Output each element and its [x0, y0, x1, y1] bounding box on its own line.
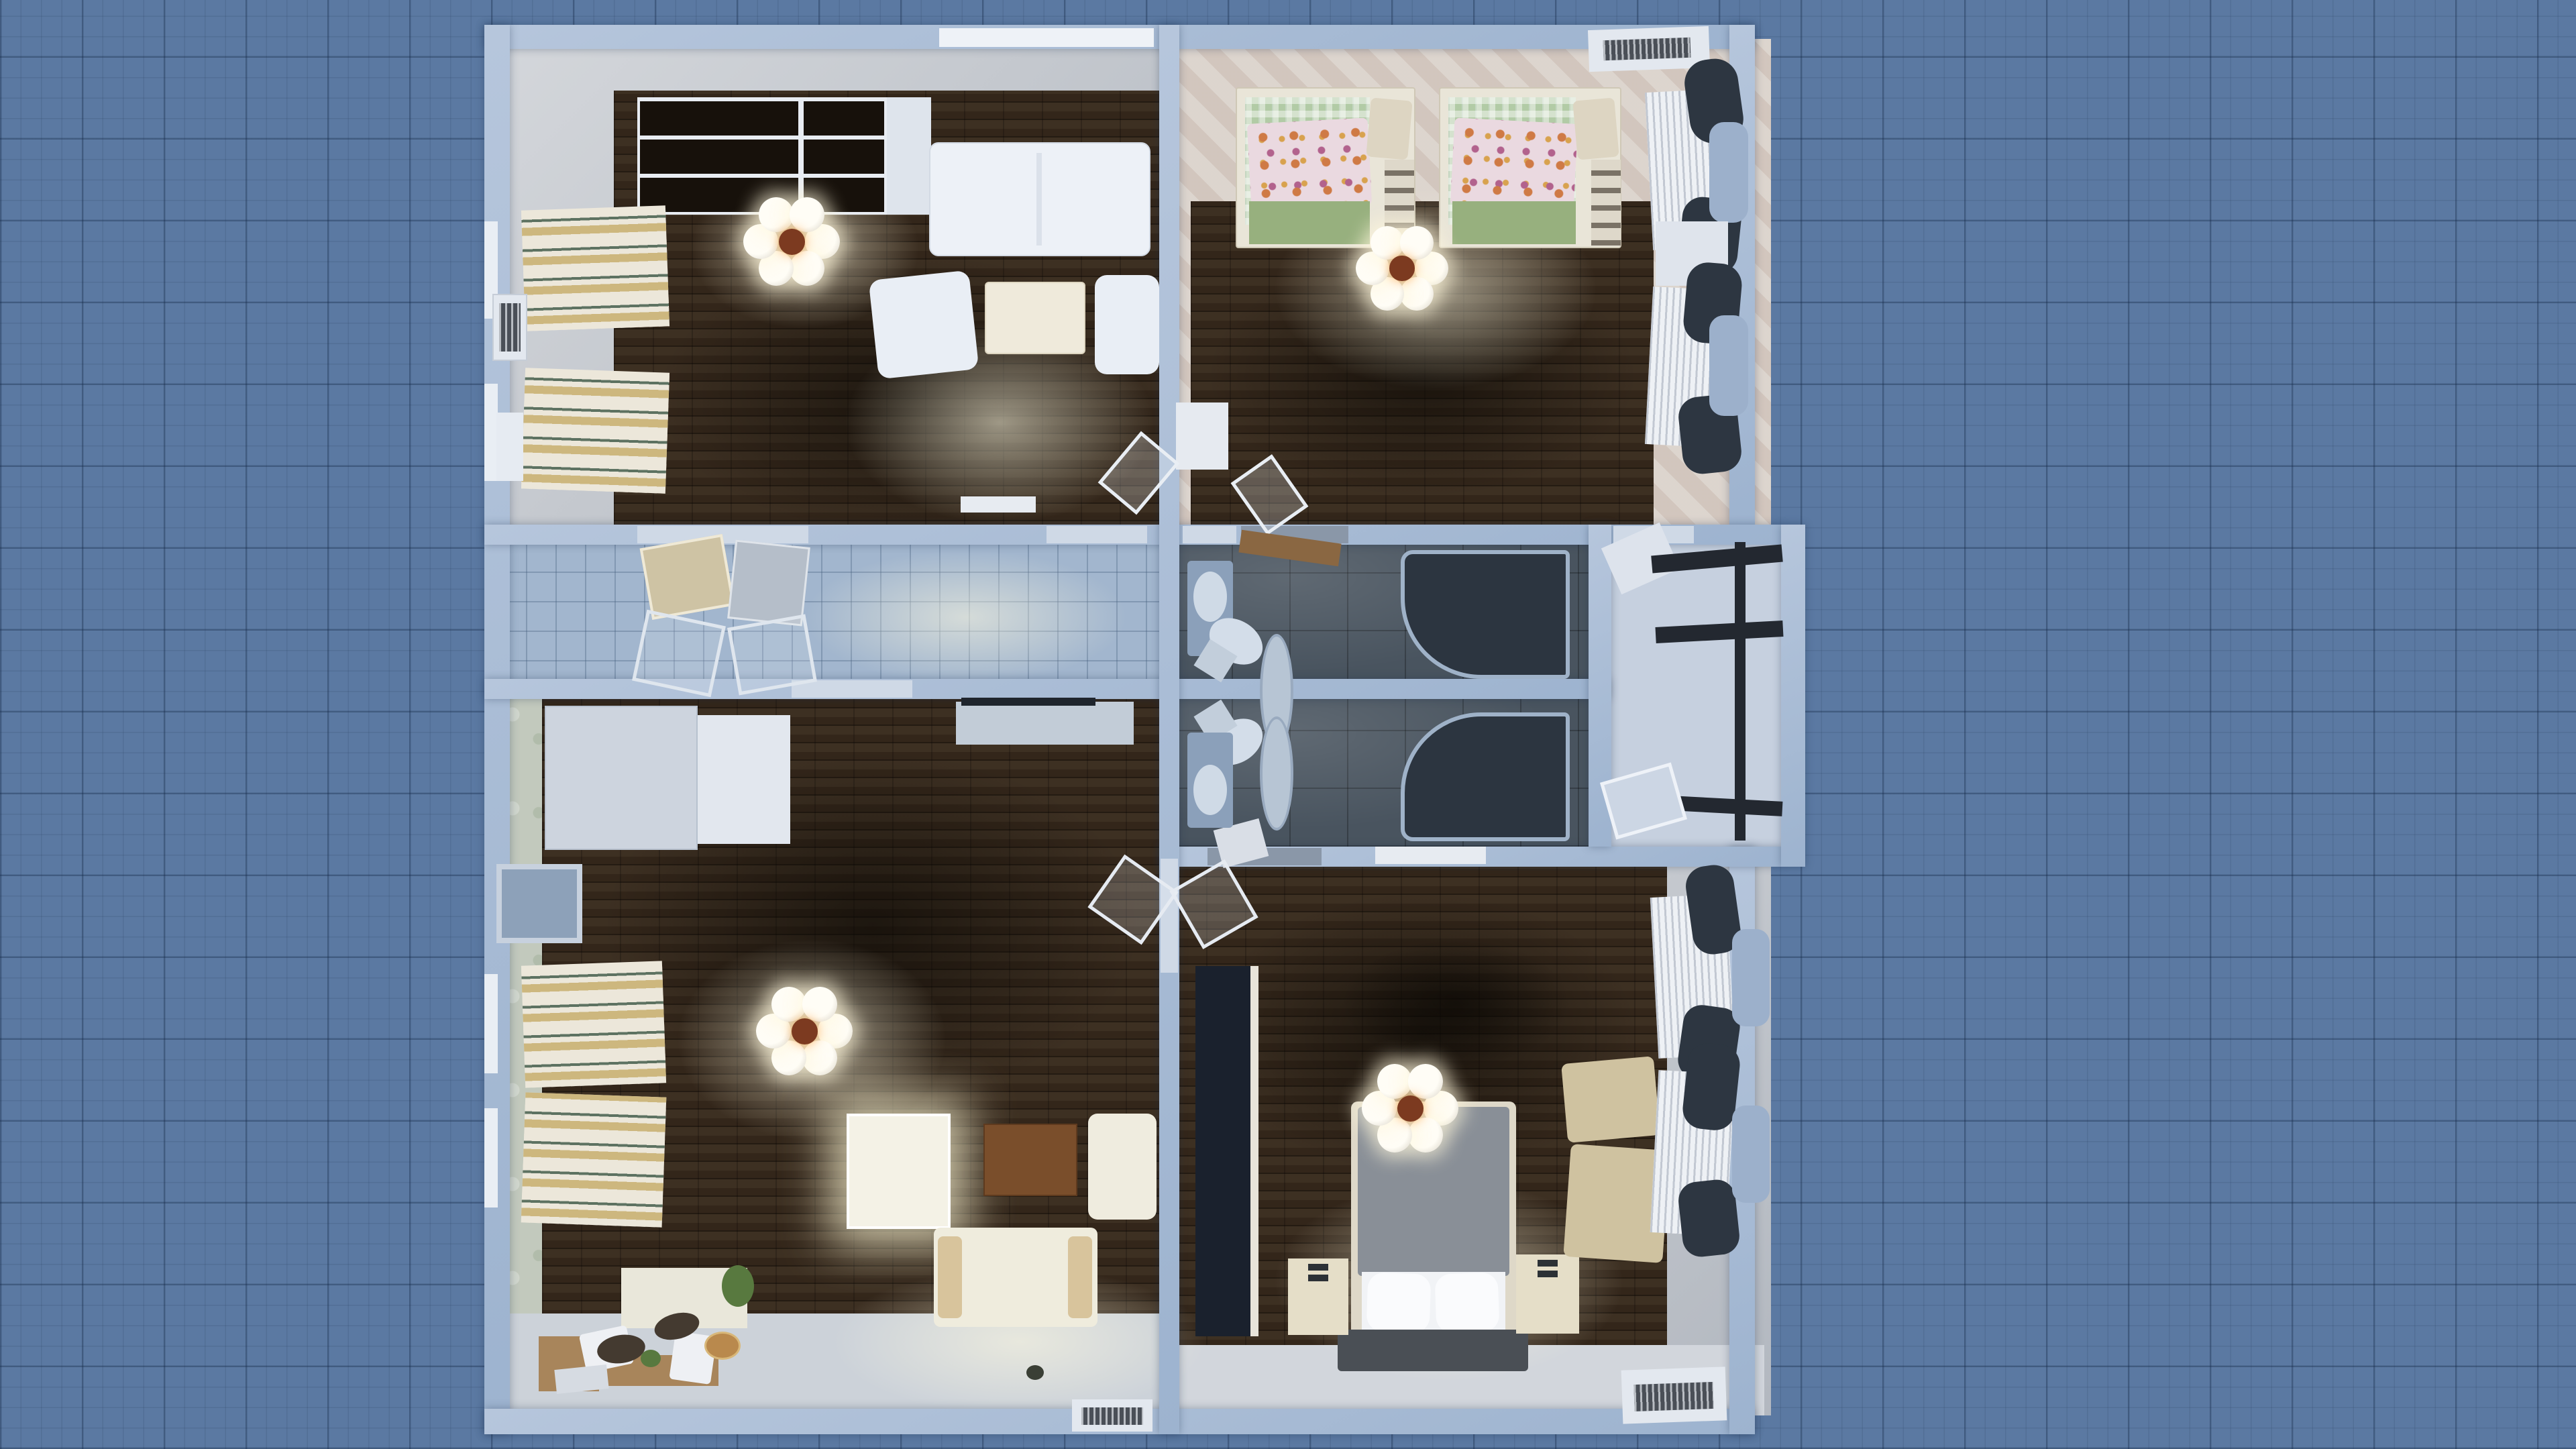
nightstand-right-knob-1	[1538, 1260, 1558, 1267]
door-leaf-entry-tan[interactable]	[640, 534, 735, 620]
shelving-unit-end-panel[interactable]	[887, 97, 931, 215]
bed-pillow-2	[1434, 1272, 1499, 1333]
wardrobe-lounge[interactable]	[545, 706, 698, 850]
sideboard-lounge-top-wall[interactable]	[956, 702, 1134, 745]
door-opening-bedroom	[1161, 859, 1178, 973]
bunk-bed-2-pillow	[1572, 97, 1619, 160]
lamp-shade	[802, 987, 837, 1022]
wall-niche-lounge	[496, 864, 582, 943]
chandelier-bedroom[interactable]	[1362, 1060, 1458, 1157]
chandelier-living[interactable]	[743, 193, 840, 290]
chandelier-lounge[interactable]	[756, 983, 853, 1079]
lamp-shade	[790, 251, 824, 286]
floor-shadow-over-bed	[1342, 939, 1570, 1067]
woven-tray-round	[704, 1332, 741, 1360]
armchair-living-2[interactable]	[1095, 275, 1159, 374]
display-cabinet-glowing[interactable]	[847, 1114, 951, 1229]
armchair-bedroom-1[interactable]	[1561, 1056, 1660, 1143]
wardrobe-dark-bedroom[interactable]	[1195, 966, 1250, 1336]
scene-canvas[interactable]	[0, 0, 2576, 1449]
plant-small-1	[641, 1350, 661, 1367]
lamp-shade	[802, 1040, 837, 1075]
ac-unit-top-grille	[1603, 38, 1691, 61]
curtain-living-1[interactable]	[521, 205, 669, 331]
side-table-wood[interactable]	[983, 1124, 1077, 1196]
armchair-living-1[interactable]	[869, 270, 979, 380]
wall-closet-right	[1781, 525, 1805, 867]
window-sill-kids-1	[1709, 122, 1748, 223]
lamp-shade	[790, 197, 824, 232]
lamp-shade	[1408, 1064, 1443, 1099]
curtain-lounge-2[interactable]	[521, 1092, 667, 1227]
chandelier-hub	[1389, 256, 1415, 281]
door-swing-glass-2	[727, 614, 817, 696]
bunk-bed-1-duvet-floral	[1247, 117, 1373, 211]
bed-pillow-1	[1366, 1272, 1431, 1333]
bunk-bed-2-ladder	[1591, 160, 1621, 246]
light-pool-corridor	[805, 550, 1127, 684]
white-cabinet-kids[interactable]	[1176, 402, 1228, 470]
bathtub-bathroom-bottom[interactable]	[1260, 716, 1293, 830]
armchair-lounge[interactable]	[1088, 1114, 1157, 1220]
vent-corridor-wall	[961, 496, 1036, 513]
sink-basin-top	[1193, 572, 1227, 622]
lamp-shade	[1377, 1064, 1412, 1099]
lamp-shade	[1400, 277, 1434, 311]
wardrobe-dark-edge	[1250, 966, 1258, 1336]
door-opening-kids	[1183, 526, 1236, 543]
window-left-2	[484, 384, 498, 481]
door-leaf-entry-gray[interactable]	[727, 539, 810, 626]
sofa-living-cushion-gap	[1036, 153, 1042, 246]
nightstand-left-knob-2	[1308, 1275, 1328, 1281]
sink-basin-bottom	[1193, 765, 1227, 815]
hanging-plant	[722, 1265, 754, 1307]
radiator-left-wall[interactable]	[496, 413, 523, 481]
lamp-shade	[771, 987, 806, 1022]
window-sill-bedroom-1	[1732, 929, 1770, 1026]
nightstand-right-knob-2	[1538, 1271, 1558, 1277]
ac-unit-bottom-left-grille	[1081, 1407, 1143, 1425]
window-left-3	[484, 974, 498, 1073]
wall-center-vertical	[1159, 25, 1179, 1434]
coffee-table-living[interactable]	[985, 282, 1085, 354]
chandelier-kids[interactable]	[1356, 222, 1448, 315]
sofa-lounge-arm-right	[1068, 1236, 1092, 1318]
ac-unit-left-grille	[499, 303, 521, 352]
door-opening-living	[1046, 526, 1147, 543]
dark-shoe-item	[1026, 1365, 1044, 1380]
window-sill-bedroom-2	[1732, 1106, 1770, 1203]
nightstand-left-knob-1	[1308, 1264, 1328, 1271]
bunk-bed-1-pillow	[1366, 97, 1412, 160]
bunk-bed-1-lower-bunk	[1249, 201, 1370, 244]
window-sill-kids-2	[1709, 315, 1748, 416]
curtain-living-2[interactable]	[521, 368, 669, 493]
bunk-bed-2-duvet-floral	[1450, 117, 1578, 211]
window-band-top-wall	[939, 28, 1154, 47]
closet-rack-post[interactable]	[1735, 542, 1746, 841]
sideboard-dark-top	[961, 698, 1095, 706]
chandelier-hub	[792, 1018, 818, 1044]
lamp-shade	[1400, 226, 1434, 260]
sofa-lounge-arm-left	[938, 1236, 962, 1318]
bunk-bed-2-lower-bunk	[1452, 201, 1576, 244]
window-left-4	[484, 1108, 498, 1207]
rug-bed-foot	[1338, 1330, 1528, 1371]
vent-bathroom-bottom-wall	[1375, 847, 1486, 864]
ac-unit-bottom-right-grille	[1633, 1382, 1713, 1411]
wardrobe-lounge-front	[698, 715, 790, 844]
chandelier-hub	[1397, 1095, 1424, 1122]
lamp-shade	[1408, 1118, 1443, 1152]
lamp-shade	[759, 197, 794, 232]
lamp-shade	[1371, 226, 1404, 260]
curtain-lounge-1[interactable]	[521, 961, 666, 1087]
chandelier-hub	[779, 229, 805, 255]
